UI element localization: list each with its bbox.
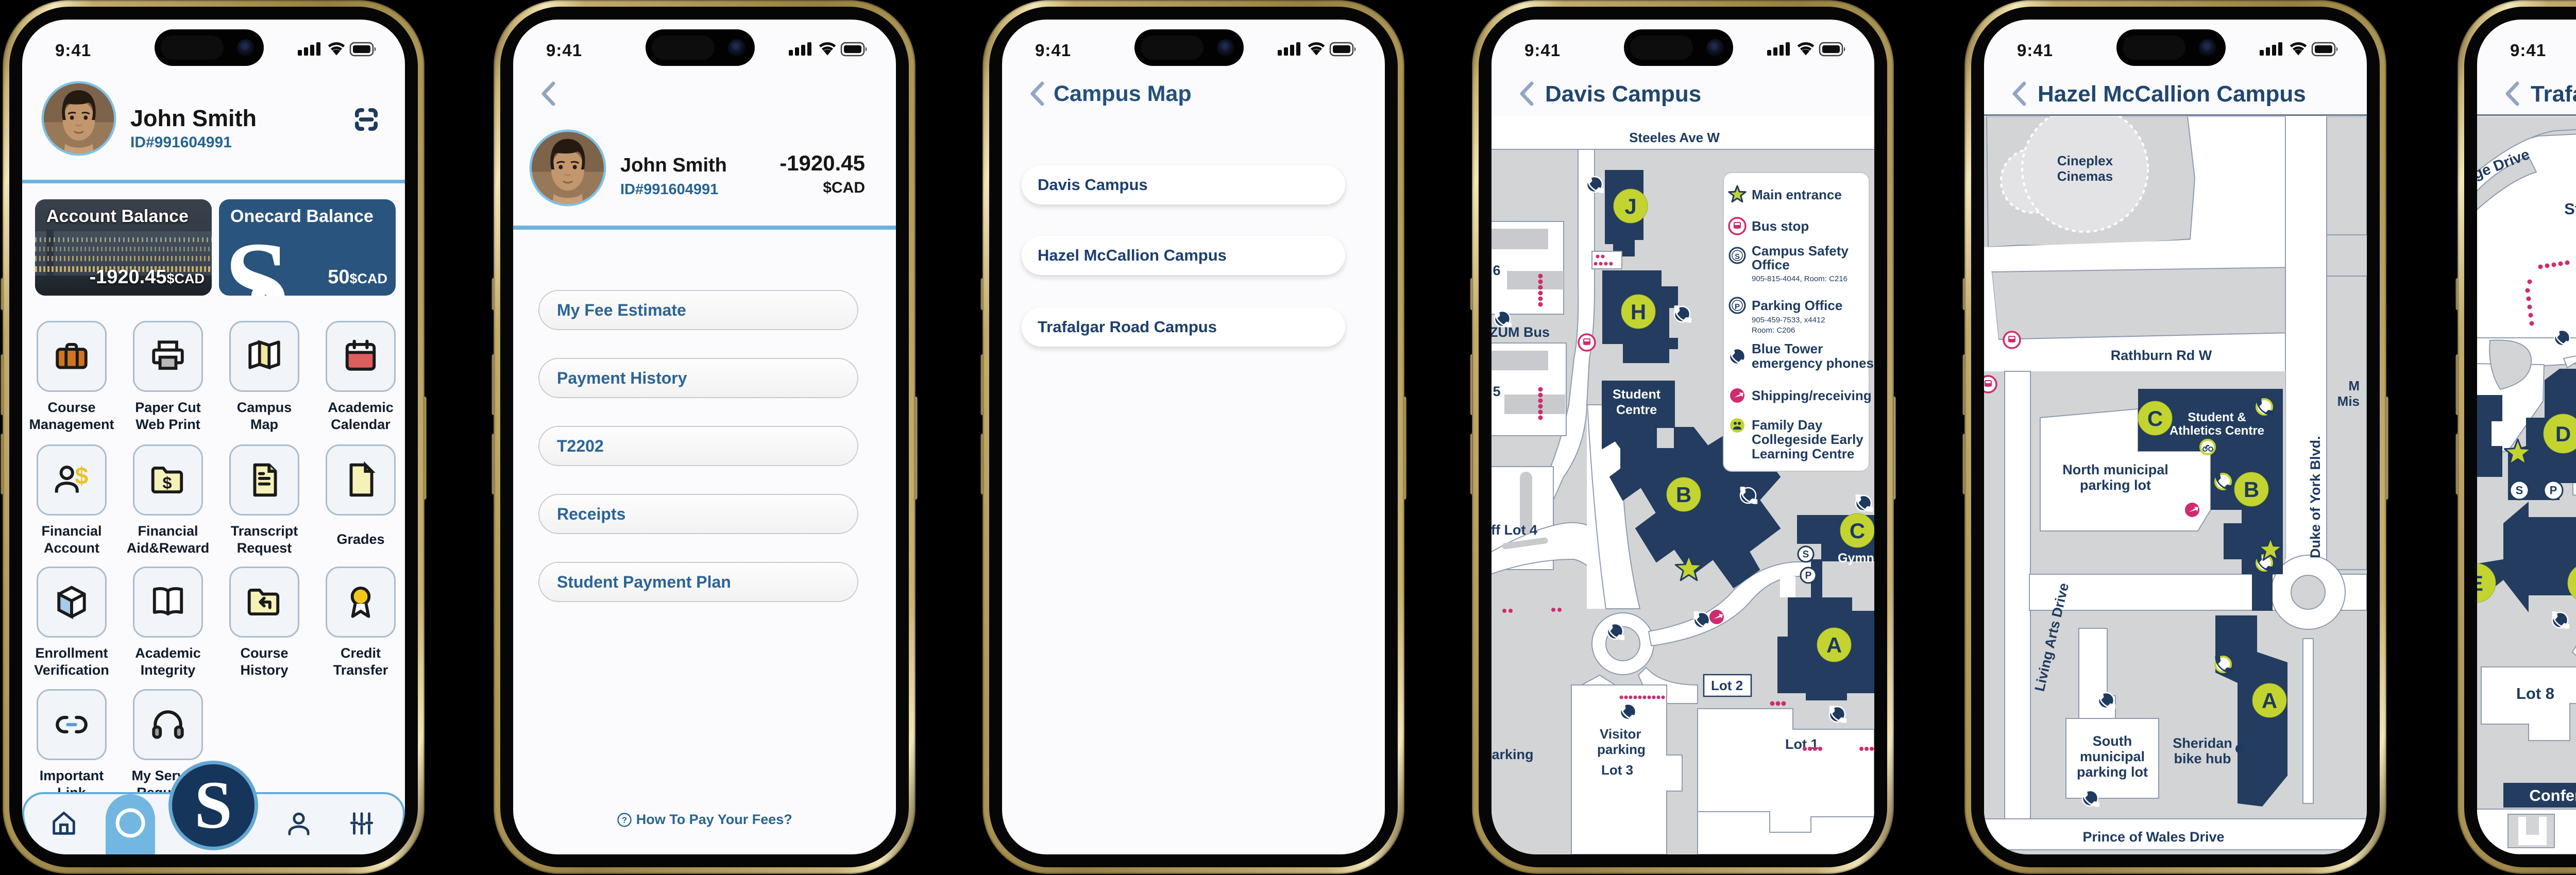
svg-text:Rathburn Rd W: Rathburn Rd W [2111, 348, 2212, 363]
svg-text:Parking Office: Parking Office [1752, 298, 1842, 313]
svg-text:Cineplex: Cineplex [2057, 153, 2113, 168]
svg-text:t 5: t 5 [1492, 384, 1501, 399]
svg-text:M: M [2348, 378, 2360, 393]
svg-text:emergency phones: emergency phones [1752, 355, 1874, 371]
svg-text:$: $ [162, 473, 172, 492]
svg-text:905-459-7533, x4412: 905-459-7533, x4412 [1752, 316, 1825, 324]
svg-text:parking: parking [1492, 747, 1534, 762]
svg-text:parking: parking [1597, 742, 1646, 757]
svg-text:Shipping/receiving: Shipping/receiving [1752, 388, 1872, 403]
svg-text:Student: Student [1613, 387, 1661, 402]
svg-text:South: South [2093, 733, 2132, 749]
svg-text:S: S [1735, 252, 1740, 261]
svg-text:J: J [1624, 194, 1636, 218]
svg-text:Family Day: Family Day [1752, 417, 1823, 433]
svg-text:Cinemas: Cinemas [2057, 168, 2113, 184]
svg-text:Campus Safety: Campus Safety [1752, 243, 1849, 259]
svg-text:Duke of York Blvd.: Duke of York Blvd. [2308, 436, 2323, 558]
svg-text:905-815-4044, Room: C216: 905-815-4044, Room: C216 [1752, 274, 1848, 283]
svg-text:Lot 8: Lot 8 [2516, 684, 2554, 702]
svg-text:Lot 2: Lot 2 [1711, 678, 1743, 693]
svg-text:Steeles Ave W: Steeles Ave W [1629, 130, 1720, 145]
svg-text:North municipal: North municipal [2062, 462, 2168, 477]
svg-text:P: P [1735, 302, 1740, 311]
svg-text:Lot 3: Lot 3 [1601, 762, 1633, 778]
svg-text:Centre: Centre [1616, 403, 1657, 417]
svg-text:S: S [2516, 484, 2523, 497]
svg-text:E: E [2477, 571, 2483, 595]
svg-text:Staff Lot: Staff Lot [2564, 200, 2576, 218]
svg-text:Sheridan: Sheridan [2173, 735, 2232, 751]
svg-text:P: P [1805, 571, 1812, 581]
svg-text:C: C [2147, 406, 2163, 431]
svg-text:Prince of Wales Drive: Prince of Wales Drive [2082, 829, 2224, 845]
svg-text:Athletics Centre: Athletics Centre [2170, 424, 2264, 438]
svg-text:D: D [2555, 422, 2571, 446]
svg-text:parking lot: parking lot [2080, 477, 2151, 493]
svg-text:Bus stop: Bus stop [1752, 218, 1809, 234]
svg-text:S: S [1803, 550, 1809, 560]
svg-text:Room: C206: Room: C206 [1752, 326, 1795, 335]
svg-text:?: ? [622, 815, 627, 825]
svg-text:Mis: Mis [2337, 393, 2360, 409]
svg-text:B: B [2244, 477, 2259, 502]
svg-text:H: H [1631, 300, 1646, 324]
svg-text:A: A [1826, 633, 1842, 657]
svg-text:bike hub: bike hub [2174, 751, 2231, 766]
svg-text:Gymnasi: Gymnasi [1838, 551, 1874, 565]
svg-text:Office: Office [1752, 257, 1790, 272]
svg-text:aff Lot 4: aff Lot 4 [1492, 522, 1537, 538]
svg-text:t 6: t 6 [1492, 263, 1501, 278]
svg-text:Main entrance: Main entrance [1752, 187, 1842, 202]
svg-text:A: A [2262, 689, 2277, 713]
svg-text:B: B [1676, 483, 1691, 507]
svg-text:P: P [2550, 484, 2557, 497]
svg-text:Collegeside Early: Collegeside Early [1752, 432, 1863, 447]
svg-text:$: $ [75, 462, 89, 489]
svg-text:Student &: Student & [2188, 410, 2246, 424]
svg-text:parking lot: parking lot [2077, 764, 2148, 780]
svg-text:Visitor: Visitor [1600, 726, 1641, 742]
svg-text:municipal: municipal [2080, 749, 2145, 764]
svg-text:Learning Centre: Learning Centre [1752, 446, 1854, 461]
svg-text:Blue Tower: Blue Tower [1752, 341, 1823, 356]
svg-text:C: C [1850, 519, 1865, 543]
svg-text:Conference Centre: Conference Centre [2529, 786, 2576, 804]
